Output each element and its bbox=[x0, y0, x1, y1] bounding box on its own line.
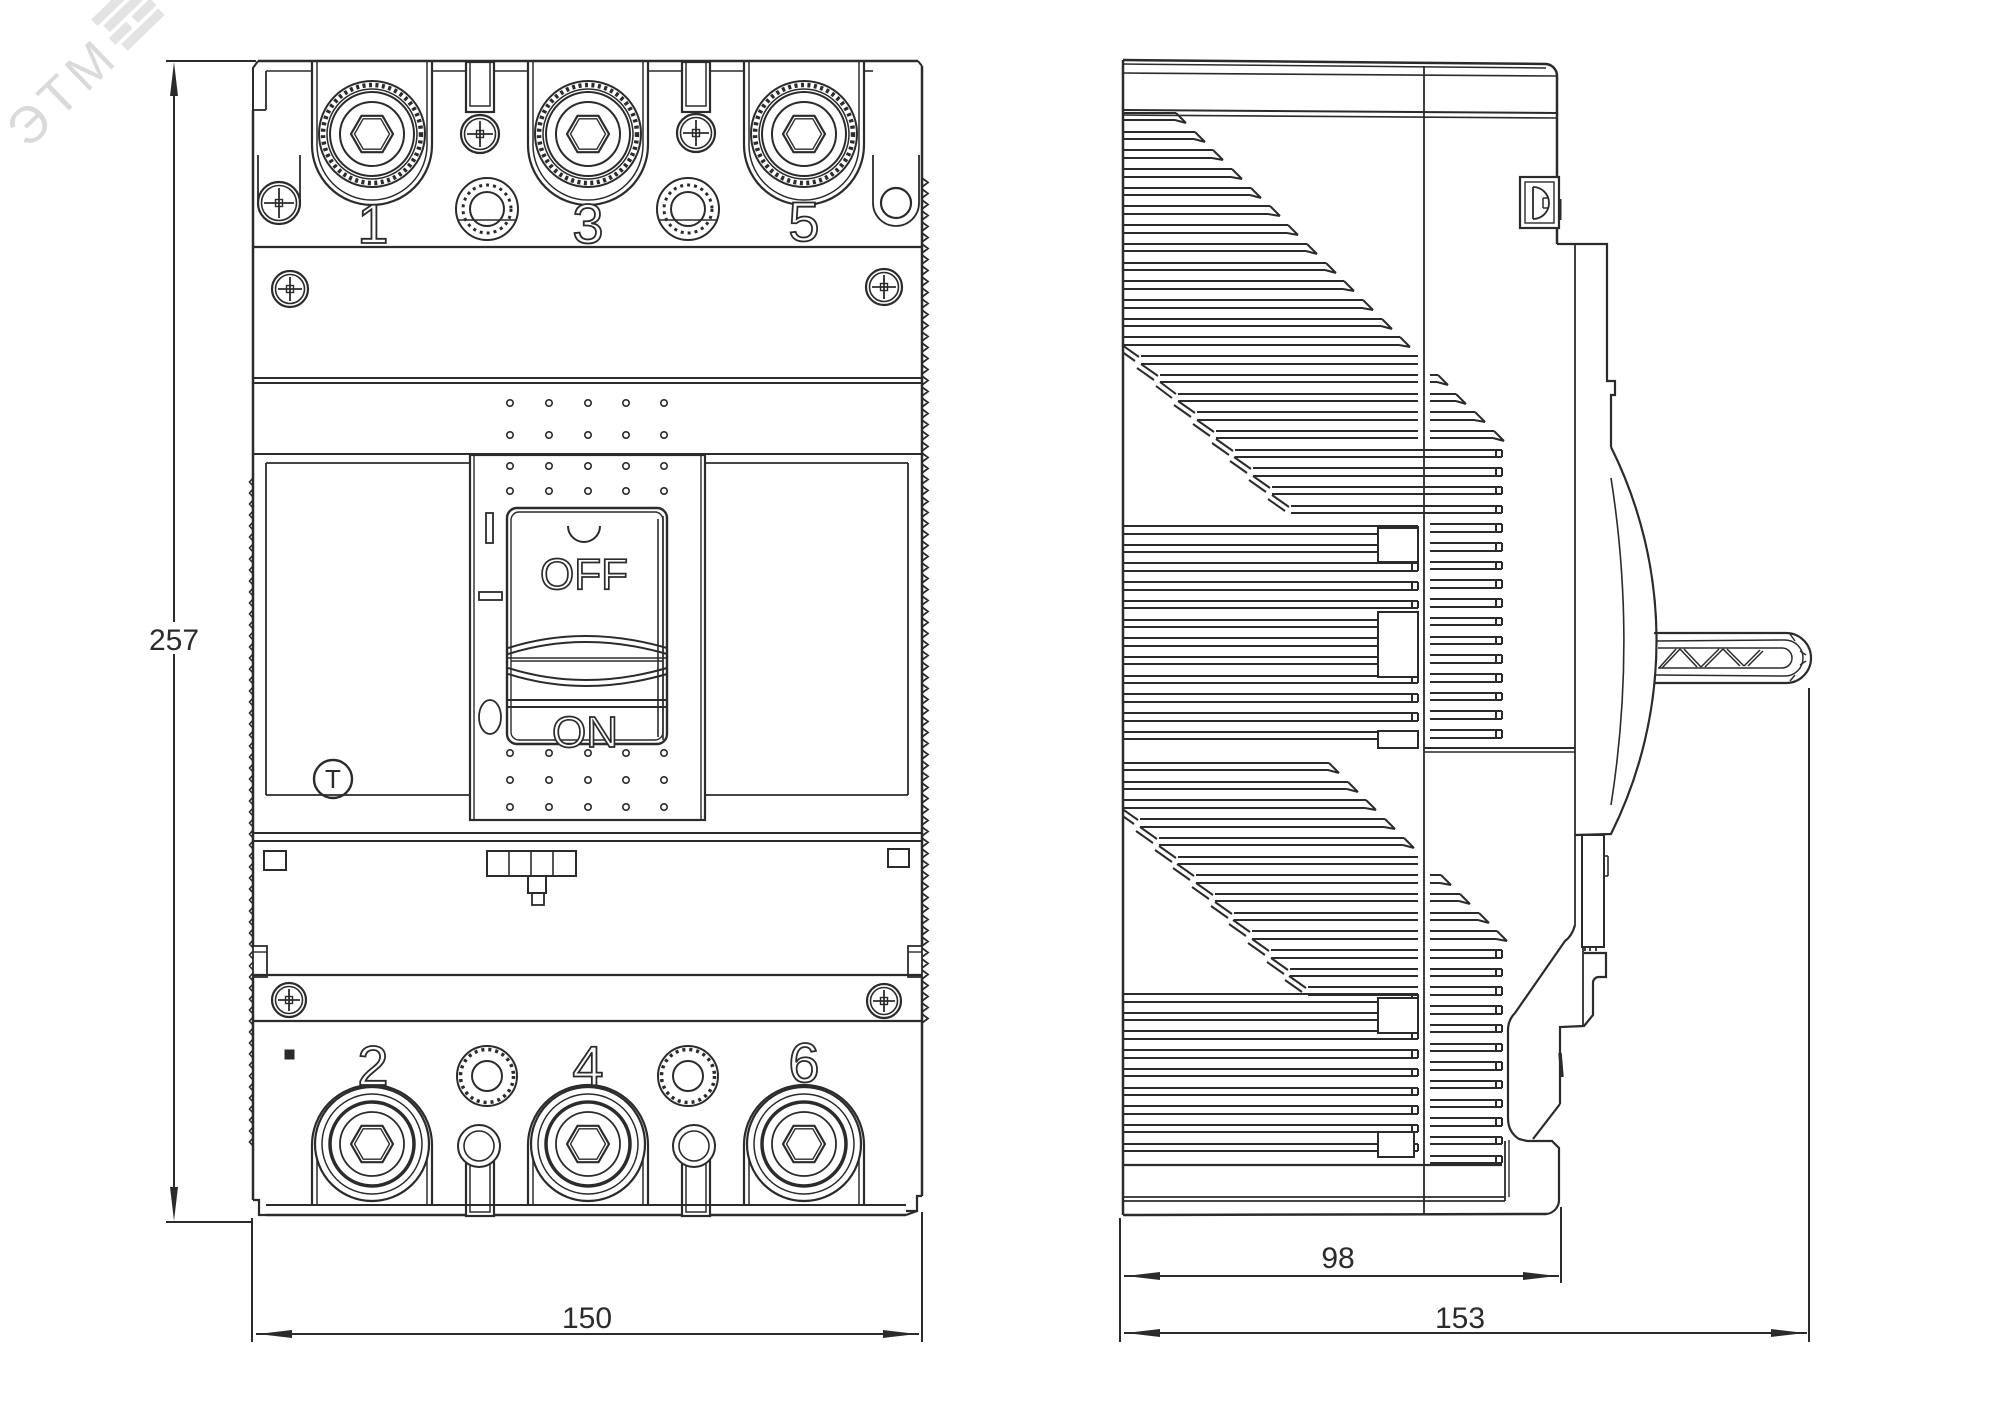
svg-text:5: 5 bbox=[788, 190, 819, 253]
svg-text:257: 257 bbox=[149, 624, 199, 657]
svg-text:3: 3 bbox=[572, 192, 603, 255]
svg-text:153: 153 bbox=[1435, 1302, 1485, 1335]
svg-text:1: 1 bbox=[357, 192, 388, 255]
svg-text:4: 4 bbox=[572, 1034, 603, 1097]
svg-text:2: 2 bbox=[357, 1034, 388, 1097]
svg-text:OFF: OFF bbox=[540, 550, 628, 599]
svg-text:6: 6 bbox=[788, 1031, 819, 1094]
svg-text:ON: ON bbox=[552, 708, 618, 757]
svg-text:150: 150 bbox=[562, 1302, 612, 1335]
svg-text:98: 98 bbox=[1321, 1242, 1354, 1275]
svg-text:T: T bbox=[325, 764, 341, 794]
